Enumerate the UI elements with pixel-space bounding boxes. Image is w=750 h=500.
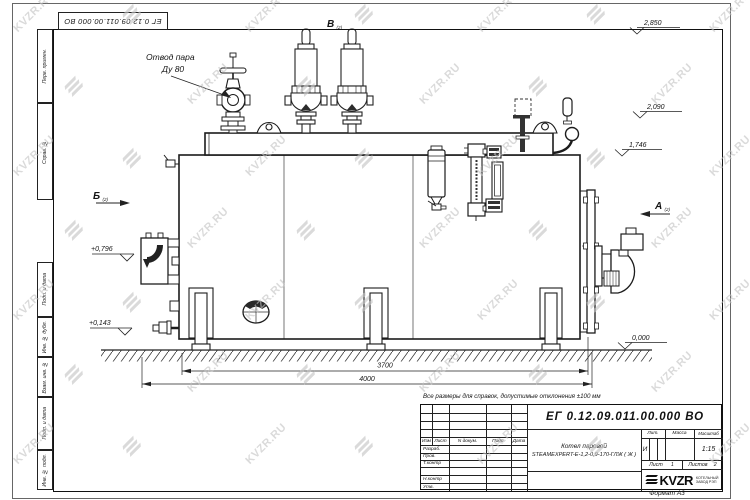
tb-header-massa: Масса: [665, 429, 694, 438]
margin-cell-label: Подп. и дата: [42, 407, 48, 439]
margin-cell-podp-data-2: Подп. и дата: [37, 397, 53, 450]
title-block: Изм Лист N докум. Подп. Дата Разраб. Про…: [420, 404, 722, 490]
tb-sheets-label: Листов: [688, 462, 707, 468]
tb-sheet-value: 1: [671, 462, 674, 468]
tb-doc-number: ЕГ 0.12.09.011.00.000 ВО: [527, 405, 723, 429]
tb-header-lit: Лит.: [641, 429, 665, 438]
top-left-stamp: ЕГ 0.12.09.011.00.000 ВО: [58, 12, 168, 30]
tb-header-podp: Подп.: [486, 437, 511, 445]
tb-name-line1: Котел паровой: [561, 443, 607, 450]
margin-cell-perv-primen: Перв. примен.: [37, 29, 53, 103]
margin-cell-label: Справ. №: [42, 140, 48, 164]
margin-cell-label: Инв. № подл.: [42, 454, 48, 487]
tb-header-masshtab: Масштаб: [694, 429, 723, 438]
tb-scale-value: 1:15: [694, 438, 723, 460]
margin-cell-sprav-no: Справ. №: [37, 103, 53, 200]
margin-cell-label: Перв. примен.: [42, 49, 48, 83]
margin-cell-label: Взам. инв. №: [42, 361, 48, 393]
tb-row-razrab: Разраб.: [421, 445, 451, 453]
tb-sheet-cell: Лист 1: [641, 460, 682, 469]
tb-header-ndoc: N докум.: [449, 437, 486, 445]
drawing-sheet: Отвод пара Ду 80 Б (2) А (2) В (2) 2,850…: [0, 0, 750, 500]
tb-lit-value: И: [641, 438, 649, 460]
tb-row-utv: Утв.: [421, 483, 451, 491]
tolerances-note: Все размеры для справок, допустимые откл…: [423, 393, 693, 400]
tb-row-nkontr: Н.контр: [421, 475, 451, 483]
kvzr-logo-icon: [646, 474, 657, 486]
kvzr-logo-text: KVZR: [660, 473, 693, 488]
tb-sheet-label: Лист: [649, 462, 663, 468]
tb-header-list: Лист: [432, 437, 449, 445]
tb-sheets-cell: Листов 2: [682, 460, 723, 469]
format-label: Формат А3: [612, 490, 722, 497]
tb-logo-cell: KVZR КОТЕЛЬНЫЙ ЗАВОД РЭП: [641, 469, 723, 491]
tb-header-data: Дата: [511, 437, 527, 445]
tb-name-line2: STEAMEXPERT-Е-1,2-0,9-170-ГЛЖ ( Ж ): [532, 452, 636, 458]
tb-part-name: Котел паровой STEAMEXPERT-Е-1,2-0,9-170-…: [527, 431, 641, 469]
stamp-code: ЕГ 0.12.09.011.00.000 ВО: [64, 17, 162, 26]
margin-cell-podp-data-1: Подп. и дата: [37, 262, 53, 317]
tb-row-prov: Пров.: [421, 453, 451, 460]
kvzr-logo-subtext: КОТЕЛЬНЫЙ ЗАВОД РЭП: [696, 476, 719, 484]
tb-header-izm: Изм: [421, 437, 432, 445]
frame-layer: Перв. примен. Справ. № Подп. и дата Инв.…: [0, 0, 750, 500]
kvzr-sub-line2: ЗАВОД РЭП: [696, 480, 719, 484]
tb-row-tkontr: Т.контр: [421, 460, 451, 467]
margin-cell-vzam-inv: Взам. инв. №: [37, 357, 53, 397]
tb-sheets-value: 2: [714, 462, 717, 468]
margin-cell-inv-podl: Инв. № подл.: [37, 450, 53, 490]
margin-cell-label: Подп. и дата: [42, 273, 48, 305]
margin-cell-inv-dubl: Инв. № дубл.: [37, 317, 53, 357]
margin-cell-label: Инв. № дубл.: [42, 321, 48, 353]
